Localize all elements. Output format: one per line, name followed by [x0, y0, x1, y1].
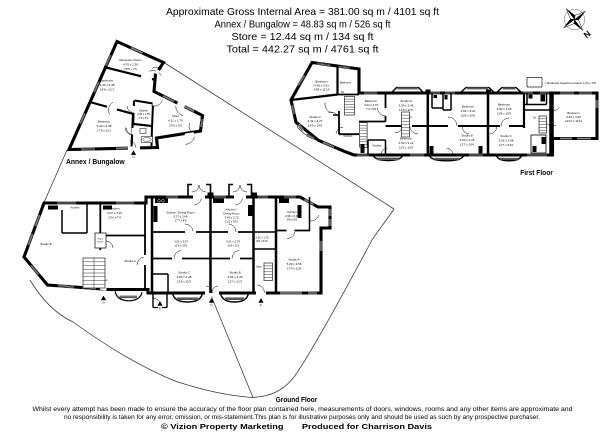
svg-text:3.84 x 3.40: 3.84 x 3.40 [228, 275, 243, 279]
svg-text:Store: Store [172, 114, 180, 118]
svg-text:11'8 x 10'5: 11'8 x 10'5 [497, 111, 511, 115]
svg-text:Bedroom: Bedroom [462, 105, 475, 109]
svg-text:13'4 x 7'4: 13'4 x 7'4 [108, 215, 121, 219]
svg-text:5.29 x 3.56: 5.29 x 3.56 [287, 262, 302, 266]
svg-text:4.07 x 2.22: 4.07 x 2.22 [107, 211, 122, 215]
svg-text:Bedroom: Bedroom [498, 103, 511, 107]
svg-text:4.11 x 1.76: 4.11 x 1.76 [168, 119, 183, 123]
svg-text:Studio A: Studio A [288, 258, 299, 262]
svg-text:12'6 x 11'5: 12'6 x 11'5 [177, 279, 191, 283]
svg-text:Kitchen: Kitchen [373, 144, 382, 148]
svg-text:17'7 x 8'9: 17'7 x 8'9 [175, 219, 187, 223]
svg-text:11'9 x 10'3: 11'9 x 10'3 [399, 145, 413, 149]
svg-text:11'5 x 8'11: 11'5 x 8'11 [225, 220, 238, 224]
svg-text:Whilst every attempt has been: Whilst every attempt has been made to en… [33, 406, 573, 413]
svg-text:3.63 x 3.15: 3.63 x 3.15 [460, 138, 475, 142]
svg-text:Studio B: Studio B [229, 271, 240, 275]
svg-text:17'4 x 11'8: 17'4 x 11'8 [287, 266, 301, 270]
svg-text:= Reduced headroom below 1.5m: = Reduced headroom below 1.5m / 5'0 [545, 81, 597, 85]
svg-text:Reception Room: Reception Room [119, 58, 142, 62]
svg-text:11'7 x 10'4: 11'7 x 10'4 [460, 142, 474, 146]
svg-text:© Vizion Property Marketing P: © Vizion Property Marketing Produced for… [161, 422, 432, 431]
svg-text:Annex / Bungalow: Annex / Bungalow [66, 157, 125, 166]
svg-text:Studio B: Studio B [40, 242, 51, 246]
svg-text:5.40 x 3.38: 5.40 x 3.38 [97, 124, 112, 128]
svg-text:7'4 x 5'9: 7'4 x 5'9 [366, 107, 377, 111]
svg-text:2.28 x 1.55: 2.28 x 1.55 [137, 112, 150, 116]
svg-text:Annex / Bungalow = 48.83 sq m: Annex / Bungalow = 48.83 sq m / 526 sq f… [215, 20, 391, 31]
svg-text:Store: Store [256, 265, 262, 268]
svg-text:Bedroom: Bedroom [400, 137, 413, 141]
svg-text:Approximate Gross Internal Are: Approximate Gross Internal Area = 381.00… [166, 7, 439, 18]
svg-text:11'6 x 9'2: 11'6 x 9'2 [227, 244, 239, 248]
svg-text:Total = 442.27 sq m / 4761 sq: Total = 442.27 sq m / 4761 sq ft [227, 45, 379, 56]
svg-text:14'6 x 11'1: 14'6 x 11'1 [100, 87, 114, 91]
svg-text:11'8 x 10'6: 11'8 x 10'6 [461, 113, 475, 117]
svg-text:3.92 x 3.08: 3.92 x 3.08 [499, 138, 514, 142]
svg-text:Kitchen: Kitchen [71, 206, 80, 210]
svg-text:Store = 12.44 sq m / 134 sq ft: Store = 12.44 sq m / 134 sq ft [232, 32, 374, 43]
svg-text:12'7 x 11'2: 12'7 x 11'2 [228, 279, 242, 283]
svg-text:9'8 x 8'9: 9'8 x 8'9 [287, 217, 298, 221]
svg-text:Wash: Wash [98, 239, 104, 241]
svg-text:8'6 x 5'10: 8'6 x 5'10 [257, 239, 268, 243]
svg-text:2.62 x 1.75: 2.62 x 1.75 [256, 236, 269, 240]
svg-text:Bedroom: Bedroom [98, 120, 111, 124]
svg-text:Kitchen: Kitchen [344, 134, 353, 138]
svg-text:First Floor: First Floor [520, 168, 553, 177]
svg-text:3.90 x 3.18: 3.90 x 3.18 [497, 107, 512, 111]
svg-text:Bathroom: Bathroom [340, 81, 351, 85]
svg-text:Bedroom: Bedroom [101, 79, 114, 83]
svg-text:4.70 x 2.30: 4.70 x 2.30 [123, 62, 138, 66]
svg-text:14'3 x 14'0: 14'3 x 14'0 [308, 123, 323, 127]
svg-text:11'9 x 11'5: 11'9 x 11'5 [399, 108, 413, 112]
svg-text:4.50 x 3.12: 4.50 x 3.12 [399, 141, 414, 145]
svg-text:Studio C: Studio C [178, 271, 190, 275]
svg-text:Kitchen: Kitchen [139, 109, 148, 113]
svg-text:Studio D: Studio D [400, 99, 412, 103]
svg-text:no responsibility is taken for: no responsibility is taken for any error… [64, 414, 540, 421]
svg-text:13'6 x 5'9: 13'6 x 5'9 [169, 123, 182, 127]
svg-text:Room: Room [98, 242, 104, 244]
svg-text:3.80 x 3.48: 3.80 x 3.48 [177, 275, 192, 279]
svg-text:Ground Floor: Ground Floor [276, 395, 318, 404]
svg-text:7'6 x 5'1: 7'6 x 5'1 [139, 116, 149, 120]
svg-text:4.43 x 3.38: 4.43 x 3.38 [100, 83, 115, 87]
svg-text:17'9 x 11'1: 17'9 x 11'1 [97, 128, 111, 132]
svg-text:Kitchen: Kitchen [109, 207, 119, 211]
svg-text:14'8 x 11'10: 14'8 x 11'10 [314, 88, 330, 92]
svg-text:15'5 x 7'6: 15'5 x 7'6 [124, 67, 137, 71]
svg-text:Studio A: Studio A [124, 259, 135, 263]
svg-text:11'7 x 9'10: 11'7 x 9'10 [499, 143, 513, 147]
svg-text:3.82 x 3.21: 3.82 x 3.21 [461, 109, 476, 113]
svg-text:Studio B: Studio B [461, 134, 472, 138]
svg-text:3.59 x 3.46: 3.59 x 3.46 [399, 103, 414, 107]
svg-text:11'6 x 10'1: 11'6 x 10'1 [174, 244, 188, 248]
svg-text:12'11 x 11'11: 12'11 x 11'11 [565, 119, 582, 123]
svg-text:Studio C: Studio C [500, 134, 512, 138]
